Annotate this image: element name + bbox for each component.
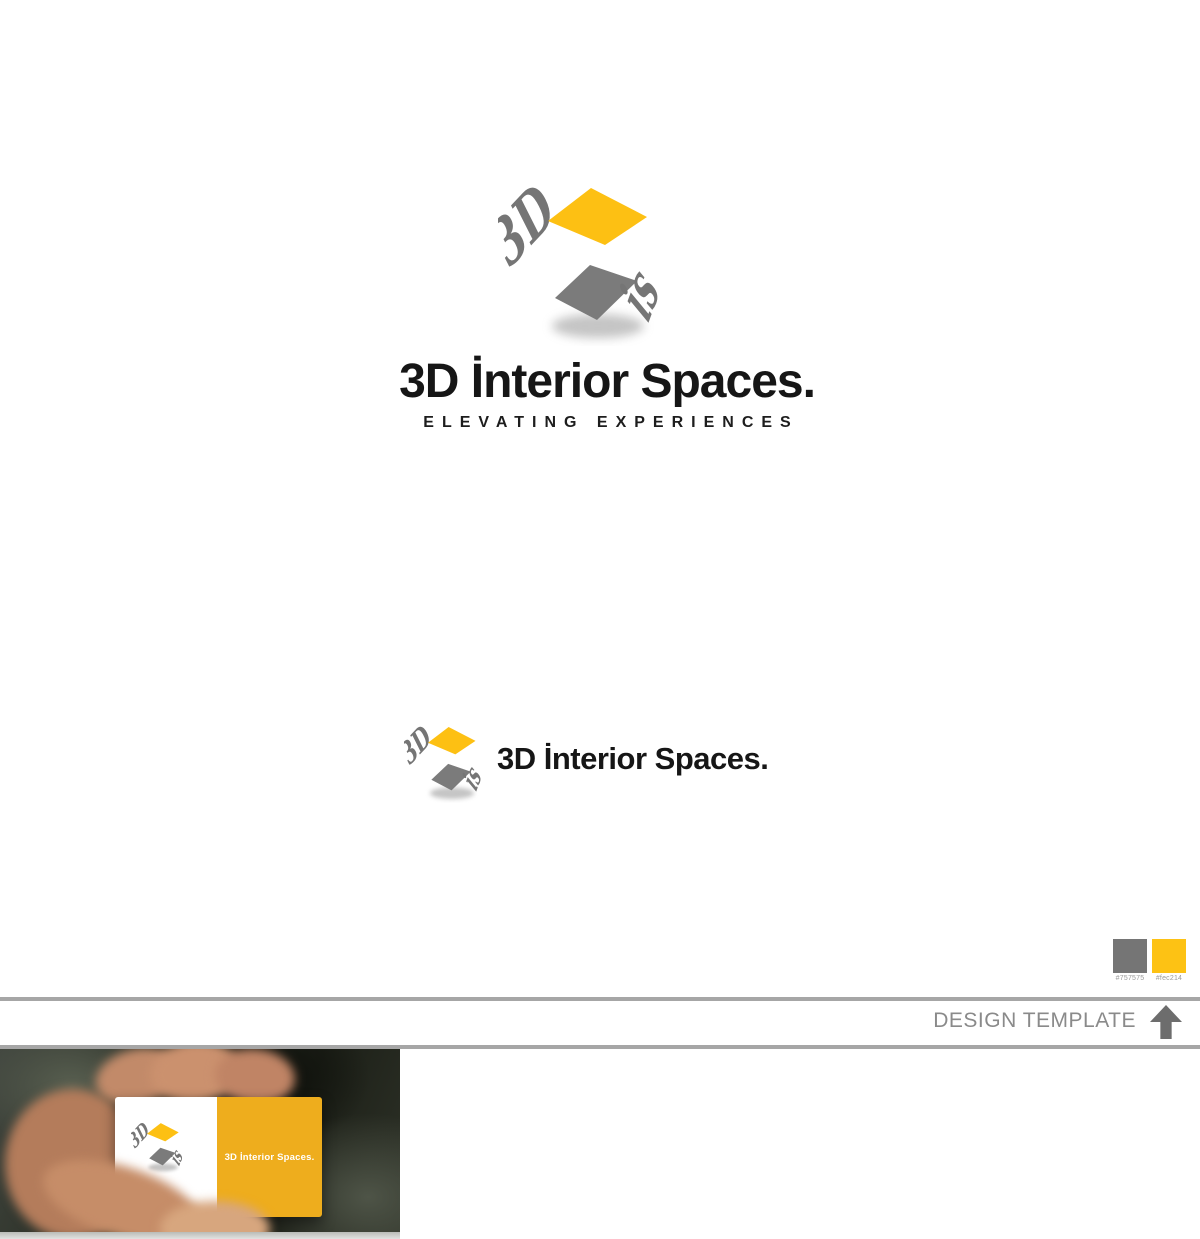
- swatch-yellow-label: #fec214: [1156, 975, 1182, 982]
- primary-logo-mark: [498, 176, 698, 346]
- swatch-gray: #757575: [1113, 939, 1147, 982]
- card-logo-mark: [131, 1119, 195, 1174]
- color-palette: #757575 #fec214: [1113, 939, 1186, 982]
- design-template-label: DESIGN TEMPLATE: [933, 1009, 1136, 1033]
- swatch-gray-box: [1113, 939, 1147, 973]
- business-card-back: 3D İnterior Spaces.: [217, 1097, 322, 1217]
- primary-logo-title: 3D İnterior Spaces.: [7, 354, 1200, 409]
- bar-top-divider: [0, 997, 1200, 1001]
- swatch-gray-label: #757575: [1116, 975, 1145, 982]
- business-card-photo: 3D İnterior Spaces.: [0, 1049, 400, 1239]
- swatch-yellow-box: [1152, 939, 1186, 973]
- up-arrow-icon: [1150, 1004, 1182, 1040]
- design-template-bar: DESIGN TEMPLATE: [0, 997, 1200, 1049]
- design-template-sheet: 3D is 3D İnterior Spaces. ELEVATING EXPE…: [0, 0, 1200, 1239]
- secondary-logo-title: 3D İnterior Spaces.: [497, 741, 768, 777]
- primary-logo-tagline: ELEVATING EXPERIENCES: [7, 414, 1200, 432]
- photo-floor-strip: [0, 1232, 400, 1239]
- card-brand-text: 3D İnterior Spaces.: [225, 1152, 315, 1163]
- swatch-yellow: #fec214: [1152, 939, 1186, 982]
- secondary-logo-mark: [404, 721, 500, 803]
